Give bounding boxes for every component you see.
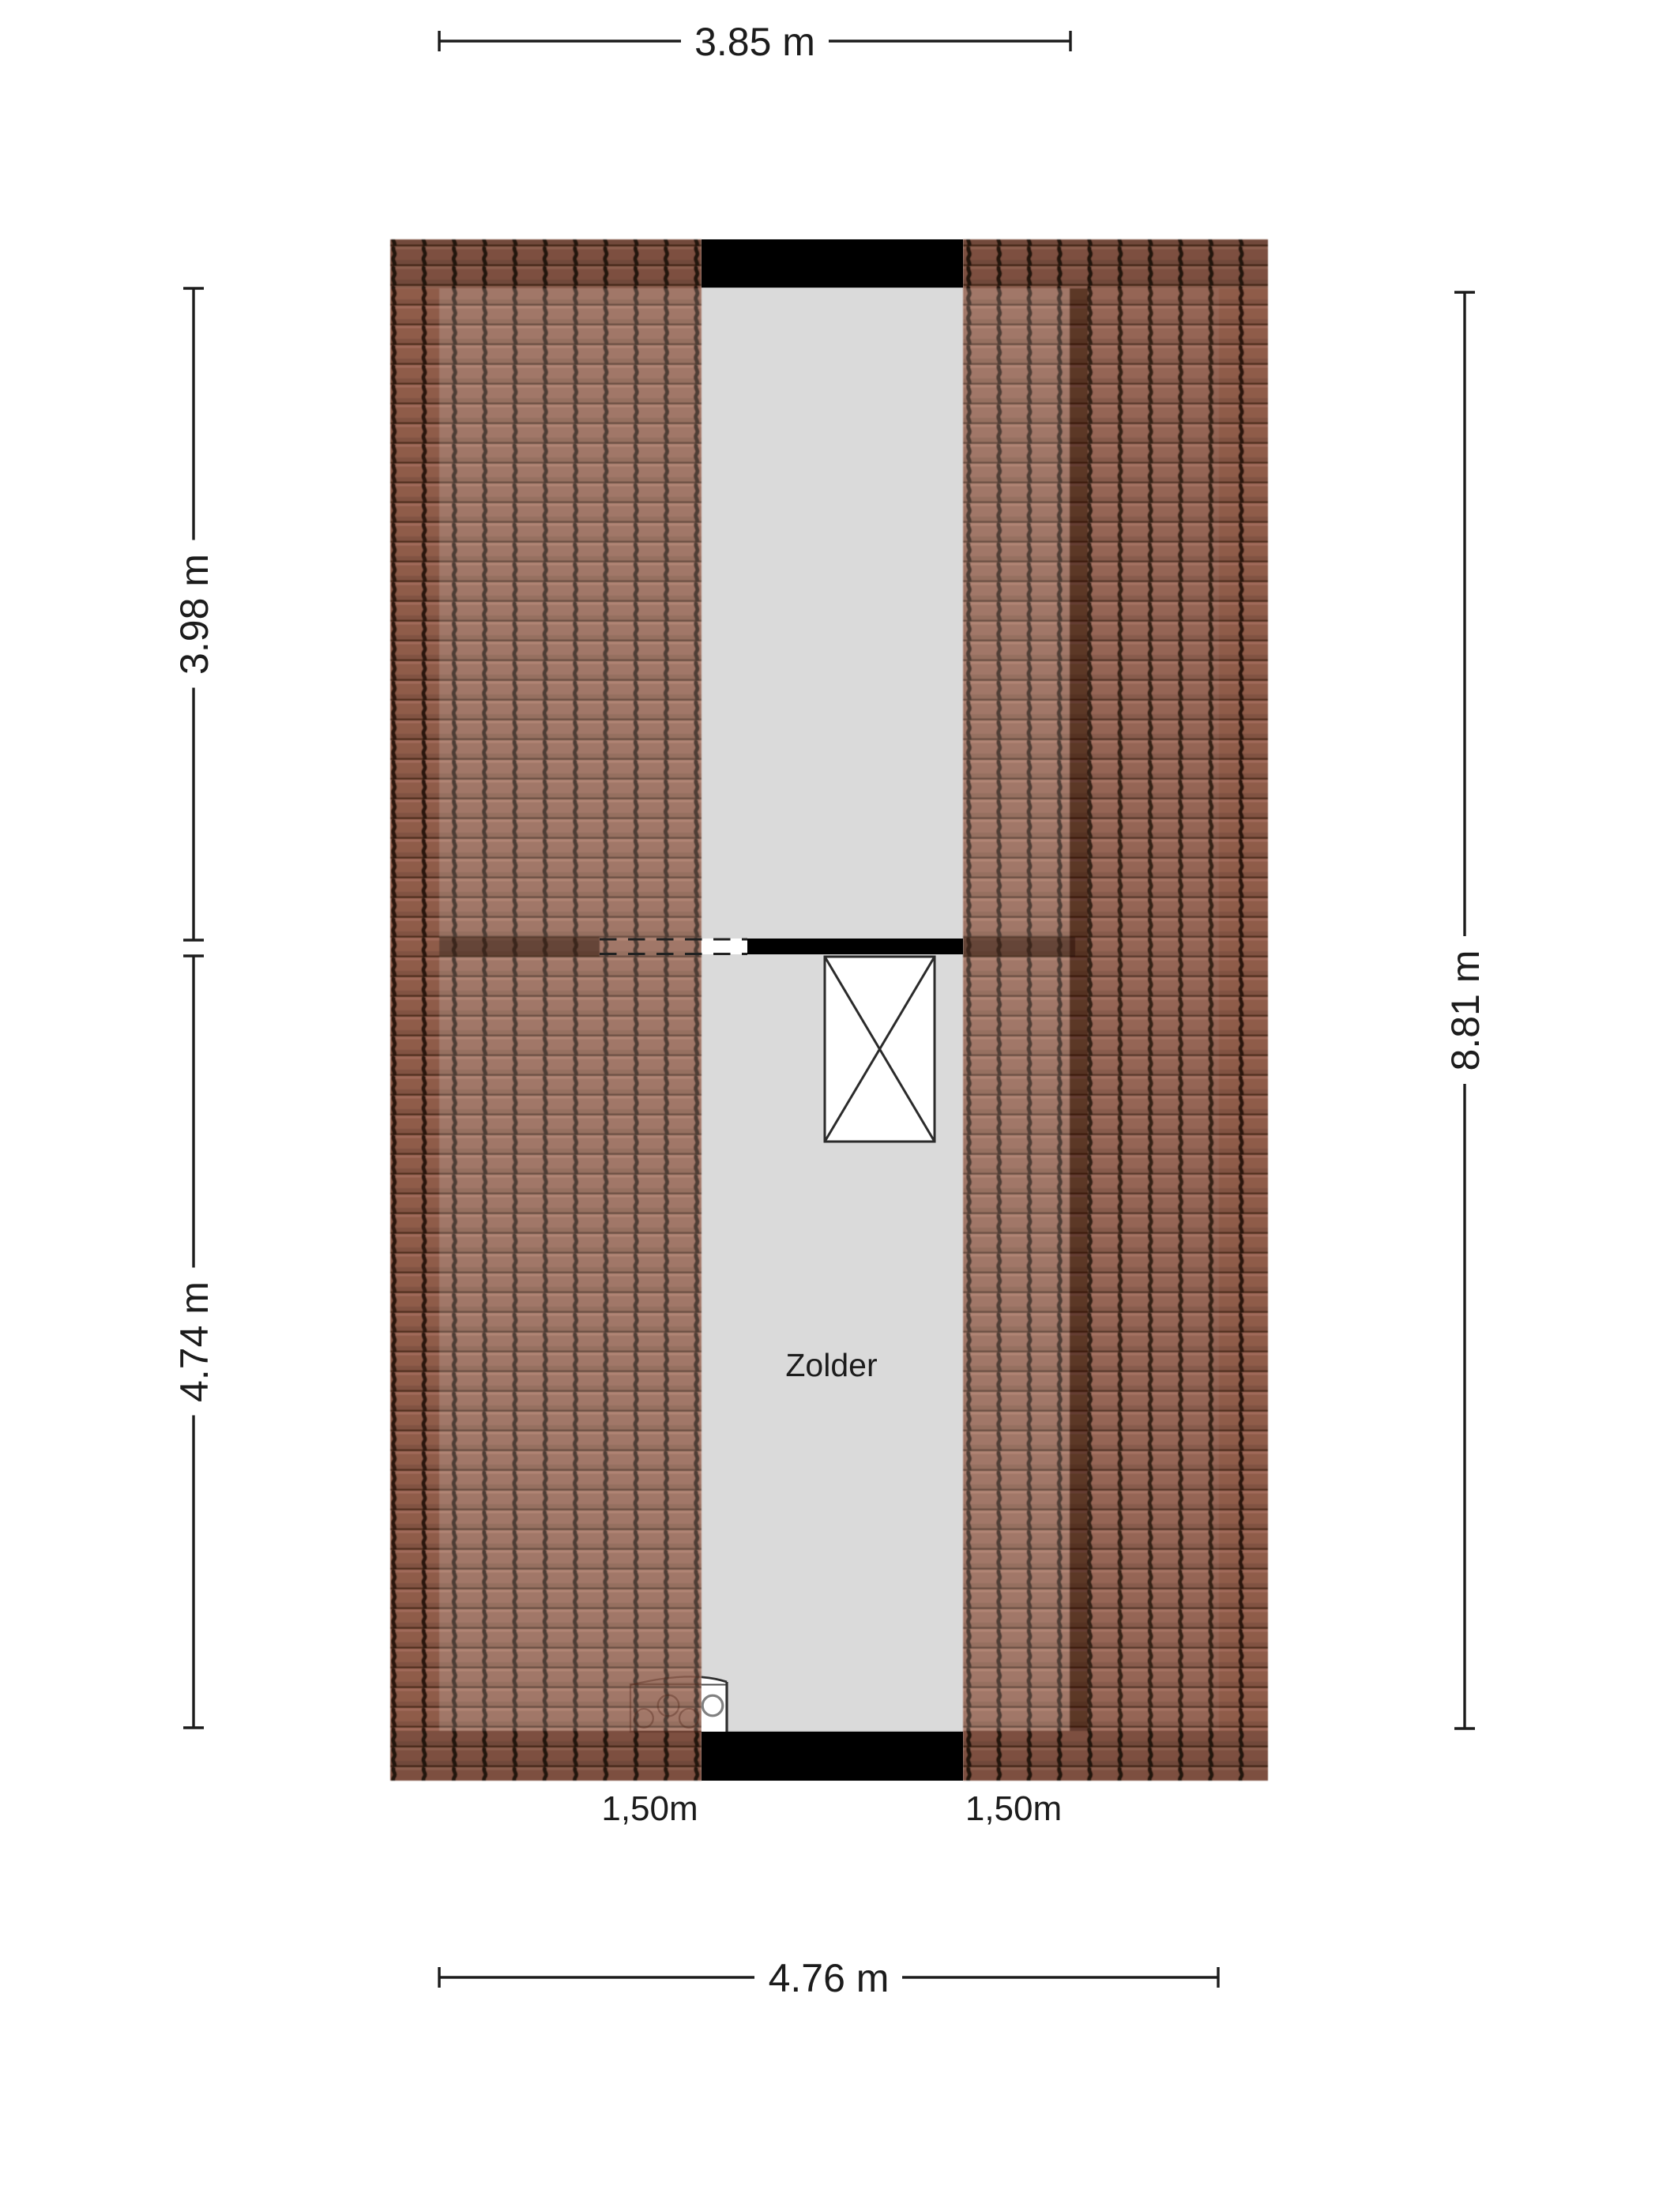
svg-text:Zolder: Zolder <box>785 1347 877 1383</box>
svg-text:8.81 m: 8.81 m <box>1443 950 1488 1071</box>
svg-text:3.98 m: 3.98 m <box>172 554 216 675</box>
svg-text:1,50m: 1,50m <box>965 1789 1062 1828</box>
svg-text:1,50m: 1,50m <box>601 1789 698 1828</box>
svg-text:4.76 m: 4.76 m <box>769 1956 890 2000</box>
svg-text:3.85 m: 3.85 m <box>694 20 815 64</box>
svg-text:4.74 m: 4.74 m <box>172 1281 216 1402</box>
